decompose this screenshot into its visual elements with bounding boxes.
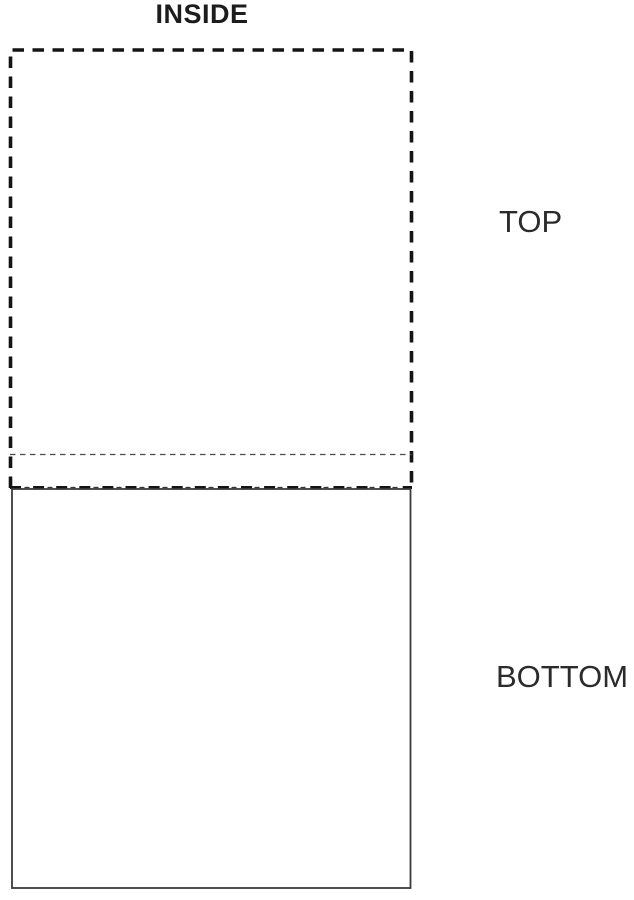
top-panel-label: TOP [499, 206, 562, 238]
fold-pattern-diagram: INSIDE TOP BOTTOM [0, 0, 634, 900]
pattern-lines-svg [0, 0, 634, 900]
top-panel-outline [11, 50, 412, 488]
bottom-panel-outline [12, 489, 411, 888]
bottom-panel-label: BOTTOM [496, 661, 628, 693]
